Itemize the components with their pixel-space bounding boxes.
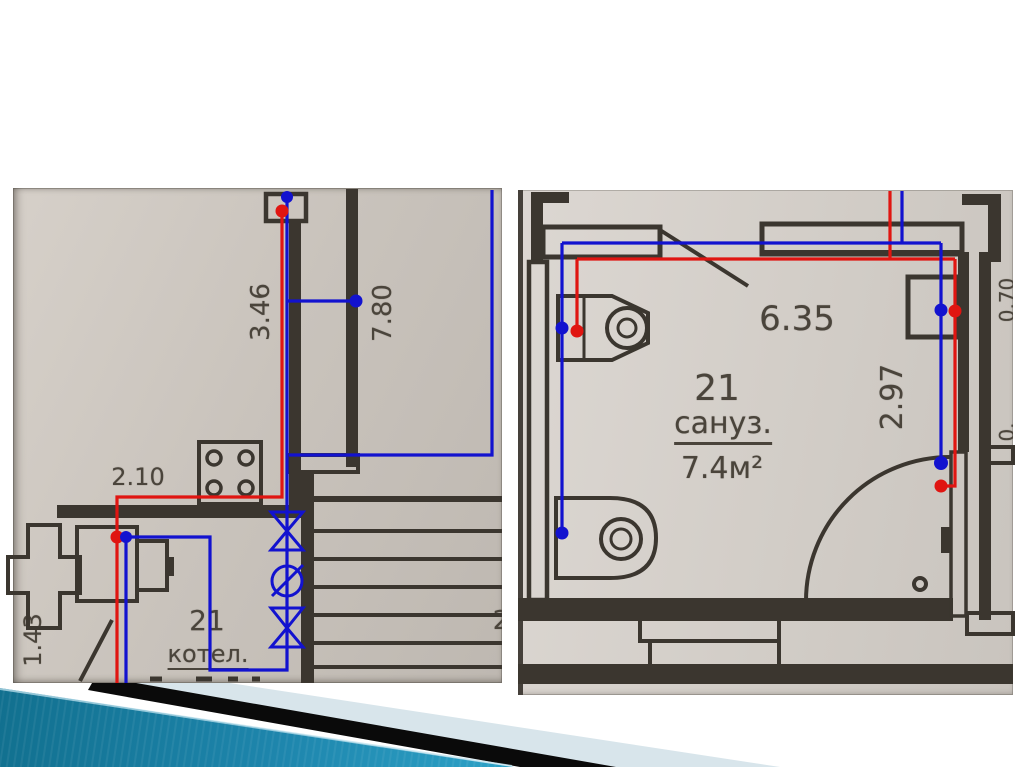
- dimension-label-6-35: 6.35: [759, 302, 835, 336]
- room-name-label-bathroom: сануз.: [674, 409, 772, 445]
- dimension-label-1-43: 1.43: [21, 613, 45, 666]
- stair-number-label: 2: [493, 608, 502, 634]
- room-area-label: 7.4м²: [681, 454, 763, 484]
- dimension-label-2-10: 2.10: [111, 465, 164, 489]
- slide: 3.46 7.80 2.10 1.43 21 котел. 2 6.35 21 …: [0, 0, 1024, 767]
- room-name-label-boiler: котел.: [168, 642, 249, 670]
- footer-teal-highlight: [0, 689, 512, 766]
- dimension-label-0-partial: 0.: [997, 422, 1013, 441]
- footer-teal-texture: [0, 688, 514, 767]
- dimension-label-0-70: 0.70: [997, 278, 1013, 323]
- dimension-label-2-97: 2.97: [878, 364, 908, 431]
- room-number-label-boiler: 21: [189, 607, 225, 635]
- footer-teal-wedge: [0, 688, 514, 767]
- floor-plan-photo-boiler-room: 3.46 7.80 2.10 1.43 21 котел. 2: [13, 188, 502, 683]
- room-number-label-bathroom: 21: [694, 371, 740, 407]
- dimension-label-3-46: 3.46: [248, 283, 274, 341]
- dimension-label-7-80: 7.80: [370, 284, 396, 342]
- floor-plan-photo-bathroom: 6.35 21 сануз. 7.4м² 2.97 0.70 0.: [518, 190, 1013, 695]
